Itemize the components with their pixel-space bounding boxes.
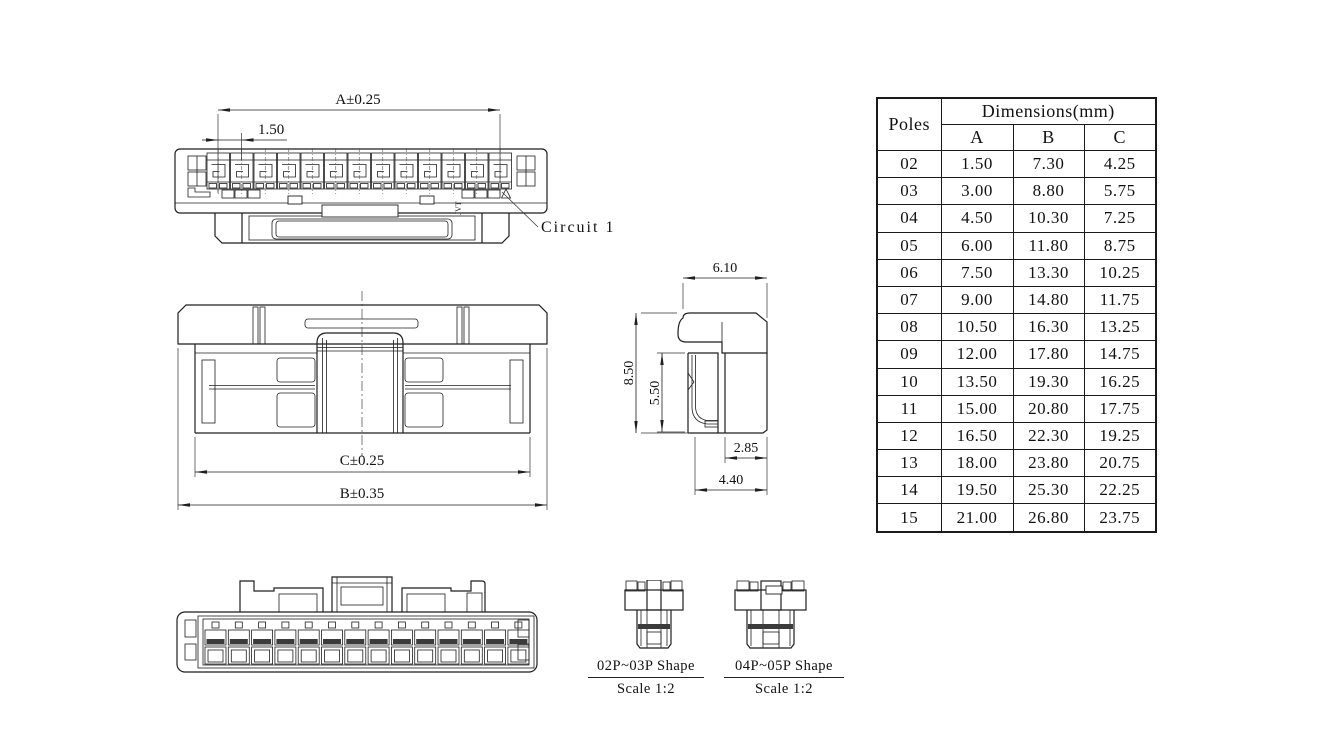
dim-a-label: A±0.25 [335,92,380,108]
dim-610-label: 6.10 [713,261,738,276]
brand-mark: JVT [454,201,463,215]
dimension-table-body: 021.507.304.25033.008.805.75044.5010.307… [877,151,1156,532]
shape-04p-05p-drawing [733,580,808,650]
rear-view-drawing [165,560,560,690]
poles-cell: 09 [877,341,941,368]
dimension-cell: 15.00 [941,395,1013,422]
dimension-cell: 19.25 [1084,422,1156,449]
circuit-label: Circuit 1 [541,219,615,236]
shape-b-label: 04P~05P Shape [724,658,844,678]
dim-850-label: 8.50 [622,361,637,386]
table-row: 1318.0023.8020.75 [877,450,1156,477]
poles-cell: 11 [877,395,941,422]
dimension-cell: 16.30 [1013,314,1084,341]
dimension-cell: 23.75 [1084,504,1156,532]
dimension-cell: 16.25 [1084,368,1156,395]
poles-cell: 10 [877,368,941,395]
plan-center-channel [317,333,403,433]
dimension-cell: 13.30 [1013,259,1084,286]
dimension-cell: 10.50 [941,314,1013,341]
dimension-cell: 19.30 [1013,368,1084,395]
dimension-cell: 10.30 [1013,205,1084,232]
table-row: 1419.5025.3022.25 [877,477,1156,504]
plan-dimension-b: B±0.35 [178,348,547,510]
dimension-cell: 21.00 [941,504,1013,532]
side-body-outline [678,313,767,433]
dimension-cell: 19.50 [941,477,1013,504]
poles-cell: 07 [877,286,941,313]
plan-side-features [202,358,523,427]
dimension-cell: 18.00 [941,450,1013,477]
shape-b-slot [766,586,782,594]
shape-b-caption: 04P~05P Shape Scale 1:2 [724,658,844,698]
table-row: 1216.5022.3019.25 [877,422,1156,449]
dimension-cell: 11.75 [1084,286,1156,313]
rear-top-profile [240,577,485,612]
table-row: 044.5010.307.25 [877,205,1156,232]
dimension-cell: 4.50 [941,205,1013,232]
poles-cell: 04 [877,205,941,232]
table-row: 1115.0020.8017.75 [877,395,1156,422]
dimension-cell: 14.75 [1084,341,1156,368]
dimensions-header: Dimensions(mm) [941,98,1156,125]
poles-cell: 08 [877,314,941,341]
shape-a-caption: 02P~03P Shape Scale 1:2 [588,658,704,698]
shape-a-outline [625,580,683,648]
table-row: 0912.0017.8014.75 [877,341,1156,368]
poles-cell: 13 [877,450,941,477]
table-row: 067.5013.3010.25 [877,259,1156,286]
shape-02p-03p-drawing [617,580,685,650]
dimension-cell: 7.25 [1084,205,1156,232]
dimension-cell: 20.75 [1084,450,1156,477]
dim-pitch-label: 1.50 [258,122,284,138]
dimension-cell: 17.75 [1084,395,1156,422]
dimension-cell: 13.50 [941,368,1013,395]
dimension-cell: 16.50 [941,422,1013,449]
dim-285-label: 2.85 [734,441,759,456]
side-dimension-total-height: 8.50 [622,313,690,433]
dimension-cell: 26.80 [1013,504,1084,532]
front-cavity-row [207,148,512,194]
table-row: 056.0011.808.75 [877,232,1156,259]
table-row: 1521.0026.8023.75 [877,504,1156,532]
dimension-cell: 7.50 [941,259,1013,286]
dimension-cell: 6.00 [941,232,1013,259]
dim-550-label: 5.50 [648,381,663,406]
rear-slot-row [205,622,529,664]
dim-440-label: 4.40 [719,473,744,488]
plan-body-outline [178,305,547,433]
dimension-cell: 5.75 [1084,178,1156,205]
column-header-c: C [1084,125,1156,151]
poles-cell: 12 [877,422,941,449]
plan-view-drawing: C±0.25 B±0.35 [165,285,585,525]
poles-cell: 14 [877,477,941,504]
dim-c-label: C±0.25 [340,453,385,469]
index-triangle-marker [502,189,511,198]
poles-cell: 15 [877,504,941,532]
dimension-cell: 20.80 [1013,395,1084,422]
column-header-b: B [1013,125,1084,151]
column-header-a: A [941,125,1013,151]
dimension-cell: 1.50 [941,151,1013,178]
dimension-cell: 14.80 [1013,286,1084,313]
dimension-table: Poles Dimensions(mm) A B C 021.507.304.2… [876,97,1157,533]
front-view-drawing: JVT A±0.25 1.50 Circuit 1 [165,85,675,275]
circuit-callout: Circuit 1 [502,192,615,236]
side-view-drawing: 6.10 8.50 5.50 2.85 4.40 [615,255,825,505]
table-row: 021.507.304.25 [877,151,1156,178]
dimension-cell: 4.25 [1084,151,1156,178]
poles-cell: 06 [877,259,941,286]
table-row: 033.008.805.75 [877,178,1156,205]
dimension-cell: 8.80 [1013,178,1084,205]
drawing-sheet: JVT A±0.25 1.50 Circuit 1 [0,0,1339,749]
dimension-cell: 17.80 [1013,341,1084,368]
dimension-cell: 25.30 [1013,477,1084,504]
side-dimension-body-height: 5.50 [648,353,685,432]
table-row: 0810.5016.3013.25 [877,314,1156,341]
front-dimension-pitch: 1.50 [202,122,287,160]
dimension-cell: 7.30 [1013,151,1084,178]
dimension-cell: 8.75 [1084,232,1156,259]
dimension-cell: 9.00 [941,286,1013,313]
dimension-cell: 13.25 [1084,314,1156,341]
dimension-cell: 22.30 [1013,422,1084,449]
shape-a-scale: Scale 1:2 [588,678,704,698]
poles-cell: 05 [877,232,941,259]
poles-cell: 02 [877,151,941,178]
poles-header: Poles [877,98,941,151]
dimension-cell: 11.80 [1013,232,1084,259]
plan-dimension-c: C±0.25 [195,437,530,477]
dimension-cell: 22.25 [1084,477,1156,504]
dim-b-label: B±0.35 [340,486,385,502]
poles-cell: 03 [877,178,941,205]
shape-b-outline [735,581,806,648]
dimension-cell: 3.00 [941,178,1013,205]
dimension-cell: 23.80 [1013,450,1084,477]
shape-a-label: 02P~03P Shape [588,658,704,678]
dimension-cell: 12.00 [941,341,1013,368]
table-row: 079.0014.8011.75 [877,286,1156,313]
shape-b-scale: Scale 1:2 [724,678,844,698]
side-dimension-top: 6.10 [683,261,767,318]
dimension-cell: 10.25 [1084,259,1156,286]
table-row: 1013.5019.3016.25 [877,368,1156,395]
